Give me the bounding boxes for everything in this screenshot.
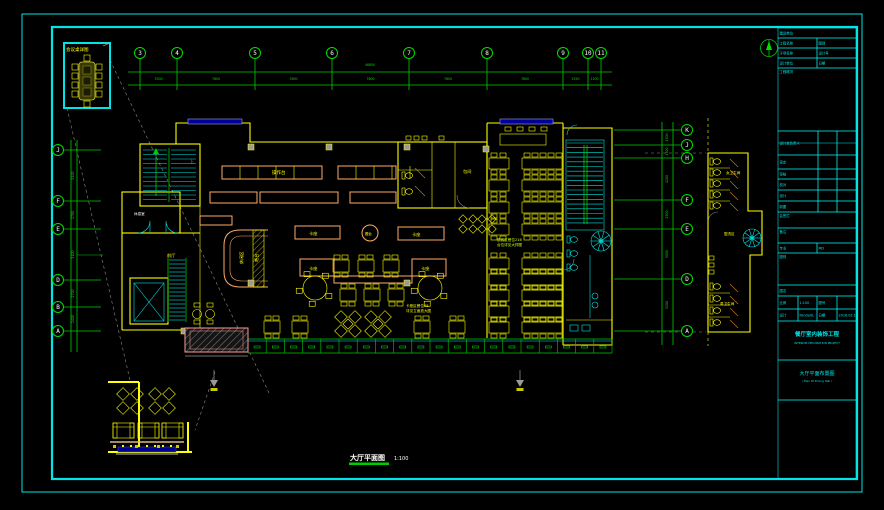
titleblock-text-subitem: 子项名称 bbox=[780, 51, 794, 56]
grid-bubble-right: H bbox=[685, 155, 689, 162]
grid-bubble-right: K bbox=[685, 127, 689, 134]
titleblock-text-design: 设计 bbox=[780, 193, 787, 198]
titleblock-text-type_label: 图别 bbox=[780, 254, 787, 259]
titleblock-text-scale_value: 1:100 bbox=[800, 301, 810, 305]
titleblock-text-design2_label: 设计 bbox=[780, 313, 787, 318]
titleblock-sheet-title: 大厅平面布置图 bbox=[799, 370, 834, 377]
dim-top: 2550 bbox=[571, 77, 579, 81]
doors bbox=[138, 125, 718, 270]
label-booth-4: 卡座 bbox=[421, 265, 429, 272]
titleblock-text-date2_value: 2016.02.18 bbox=[839, 314, 858, 318]
label-round-table: 圆台 bbox=[365, 231, 372, 236]
label-rest-room: 休息室 bbox=[134, 211, 145, 216]
titleblock-text-approve: 审定 bbox=[780, 160, 787, 165]
dim-top: 1200 bbox=[590, 77, 598, 81]
dim-top: 7800 bbox=[366, 77, 374, 81]
dim-right: 1500 bbox=[665, 133, 669, 141]
titleblock-text-major_value: MD bbox=[819, 247, 825, 251]
note-booth-1: 卡座区餐位48 bbox=[406, 303, 429, 308]
conference-detail-title: 会议桌详图 bbox=[66, 46, 89, 53]
grid-bubble-right: F bbox=[685, 197, 689, 204]
dim-top: 3300 bbox=[154, 77, 162, 81]
dim-top: 7800 bbox=[521, 77, 529, 81]
floor-plan-drawing: 3330047800578006780077800878009255010120… bbox=[0, 0, 884, 510]
outdoor-lounge-furniture bbox=[113, 388, 183, 448]
grid-bubble-left: F bbox=[56, 198, 60, 205]
grid-bubble-top: 4 bbox=[175, 50, 179, 57]
note-dining-2: 台位详见大样图 bbox=[497, 242, 523, 247]
window-north-left bbox=[188, 119, 242, 124]
titleblock-text-countersign: 会签栏 bbox=[780, 213, 791, 218]
grid-bubble-top: 11 bbox=[597, 50, 605, 57]
dim-top-overall: 46800 bbox=[365, 63, 375, 67]
titleblock-text-overview: 工程概况 bbox=[780, 69, 794, 74]
title-underline bbox=[349, 463, 389, 466]
titleblock-text-design2_value: PandaXL bbox=[800, 314, 815, 318]
grid-right: K1500J1300H4200F2900E5000D5200A bbox=[614, 122, 693, 345]
label-counter: 操作台 bbox=[272, 169, 286, 176]
cad-sheet: 3330047800578006780077800878009255010120… bbox=[0, 0, 884, 510]
titleblock-text-scale_label: 比例 bbox=[780, 300, 787, 305]
grid-bubble-top: 9 bbox=[561, 50, 565, 57]
titleblock-text-sheet_label: 图号 bbox=[819, 300, 826, 305]
grid-bubble-top: 7 bbox=[407, 50, 411, 57]
dim-top: 7800 bbox=[289, 77, 297, 81]
bar-counter bbox=[224, 230, 268, 287]
grid-bubble-top: 3 bbox=[138, 50, 142, 57]
dim-left: 2700 bbox=[71, 289, 75, 297]
label-booth-3: 卡座 bbox=[309, 265, 317, 272]
dim-right: 5200 bbox=[665, 301, 669, 309]
window-north-right bbox=[500, 119, 553, 124]
grid-bubble-left: B bbox=[56, 304, 60, 311]
north-arrow-icon bbox=[761, 40, 778, 57]
titleblock-text-project: 工程名称 bbox=[780, 41, 794, 46]
grid-top: 3330047800578006780077800878009255010120… bbox=[128, 48, 612, 91]
grid-bubble-right: A bbox=[685, 328, 689, 335]
grid-left: J5100F2700E5100D2700B2400A bbox=[53, 140, 104, 352]
grid-bubble-left: A bbox=[56, 328, 60, 335]
dim-right: 2900 bbox=[665, 210, 669, 218]
dim-right: 1300 bbox=[665, 147, 669, 155]
titleblock-text-category: 图别 bbox=[819, 41, 826, 46]
dim-left: 2400 bbox=[71, 315, 75, 323]
note-booth-2: 详见立面放大图 bbox=[406, 308, 432, 313]
sheet-frame bbox=[22, 14, 862, 492]
toilet-enlarged-detail: 女卫生间 盥洗区 男卫生间 bbox=[708, 153, 762, 332]
dining-tables bbox=[489, 127, 562, 338]
dim-left: 2700 bbox=[71, 211, 75, 219]
grid-bubble-left: E bbox=[56, 226, 60, 233]
grid-bubble-right: J bbox=[685, 142, 689, 149]
titleblock-text-proof: 校对 bbox=[780, 182, 787, 187]
titleblock-text-date2_label: 日期 bbox=[819, 313, 826, 318]
curtain-wall-south bbox=[248, 339, 612, 353]
label-bar: 吧台 bbox=[253, 254, 260, 262]
grid-bubble-left: J bbox=[56, 147, 60, 154]
drawing-title: 大厅平面图 1:100 bbox=[349, 453, 408, 465]
dim-left: 5100 bbox=[71, 250, 75, 258]
label-lounge: 休闲区 bbox=[238, 251, 245, 264]
kitchen-counters bbox=[200, 166, 396, 225]
drawing-scale-text: 1:100 bbox=[394, 456, 408, 462]
dim-right: 5000 bbox=[665, 250, 669, 258]
outer-border bbox=[22, 14, 862, 492]
grid-bubble-top: 6 bbox=[330, 50, 334, 57]
titleblock-text-firm: 设计单位 bbox=[780, 61, 794, 66]
dim-top: 7800 bbox=[212, 77, 220, 81]
titleblock-sheet-title-en: ( Plan Of Dining Hall ) bbox=[802, 379, 832, 383]
titleblock-text-major_label: 专业 bbox=[780, 246, 787, 251]
dim-right: 4200 bbox=[665, 175, 669, 183]
grid-bubble-top: 10 bbox=[584, 50, 592, 57]
entrance-arrows bbox=[210, 370, 524, 391]
titleblock-text-remark: 备注 bbox=[780, 229, 787, 234]
titleblock-text-name_header: 图名 bbox=[780, 288, 787, 293]
titleblock-text-date1: 日期 bbox=[819, 61, 826, 66]
label-booth-2: 卡座 bbox=[412, 231, 420, 238]
grid-bubble-right: D bbox=[685, 276, 689, 283]
entrance-mat bbox=[185, 328, 248, 356]
stairs bbox=[134, 140, 611, 322]
titleblock-text-check: 审核 bbox=[780, 172, 787, 177]
title-block: 建设单位工程名称图别子项名称设计号设计单位日期工程概况设计总负责人审定审核校对设… bbox=[778, 28, 858, 479]
titleblock-text-unit: 建设单位 bbox=[780, 31, 794, 36]
titleblock-text-draft: 制图 bbox=[780, 204, 787, 209]
label-female-wc: 女卫生间 bbox=[726, 170, 741, 175]
grid-bubble-left: D bbox=[56, 277, 60, 284]
titleblock-text-design_no: 设计号 bbox=[819, 51, 830, 56]
drawing-title-text: 大厅平面图 bbox=[350, 453, 385, 462]
label-lobby: 前厅 bbox=[167, 252, 175, 259]
conference-table-detail: 会议桌详图 bbox=[64, 43, 110, 108]
label-stair-up: 上 bbox=[190, 158, 194, 164]
note-dining-1: 散客区餐位216 bbox=[497, 237, 523, 242]
label-booth-1: 卡座 bbox=[309, 230, 317, 237]
dim-top: 7800 bbox=[444, 77, 452, 81]
label-washing: 盥洗区 bbox=[724, 231, 735, 236]
label-private-room: 包间 bbox=[463, 168, 471, 175]
grid-bubble-top: 5 bbox=[253, 50, 257, 57]
dim-left: 5100 bbox=[71, 171, 75, 179]
titleblock-project-title-en: INTERIOR DECORATION PROJECT bbox=[794, 341, 840, 345]
toilets bbox=[567, 236, 598, 331]
grid-bubble-right: E bbox=[685, 226, 689, 233]
titleblock-project-title: 餐厅室内装饰工程 bbox=[794, 330, 840, 338]
grid-bubble-top: 8 bbox=[485, 50, 489, 57]
